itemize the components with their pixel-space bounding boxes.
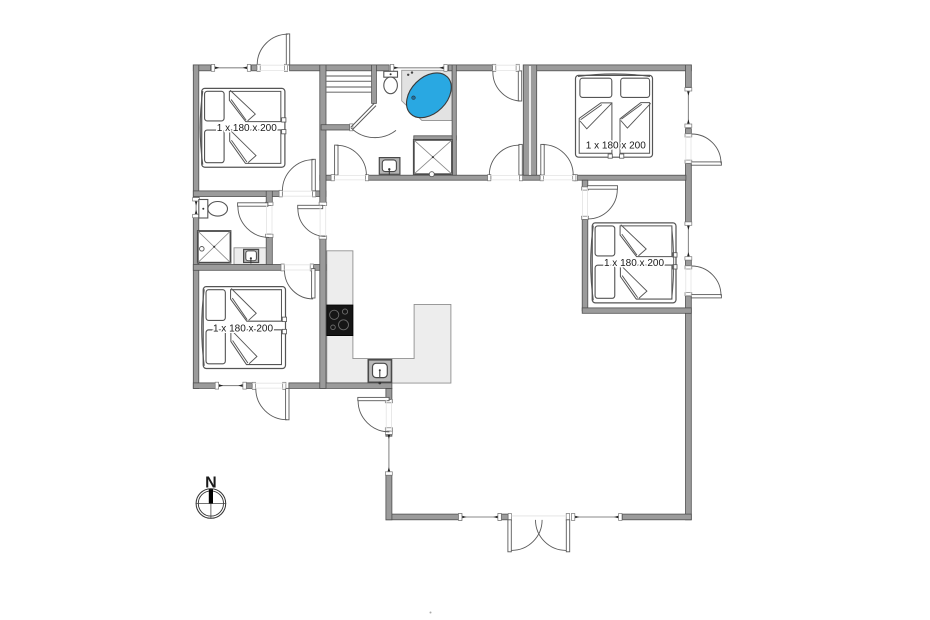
svg-text:1 x 180 x 200: 1 x 180 x 200 <box>217 123 277 134</box>
svg-text:1 x 180 x 200: 1 x 180 x 200 <box>213 324 273 335</box>
svg-text:1 x 180 x 200: 1 x 180 x 200 <box>604 258 664 269</box>
svg-text:1 x 180 x 200: 1 x 180 x 200 <box>586 140 646 151</box>
svg-text:N: N <box>205 475 217 492</box>
